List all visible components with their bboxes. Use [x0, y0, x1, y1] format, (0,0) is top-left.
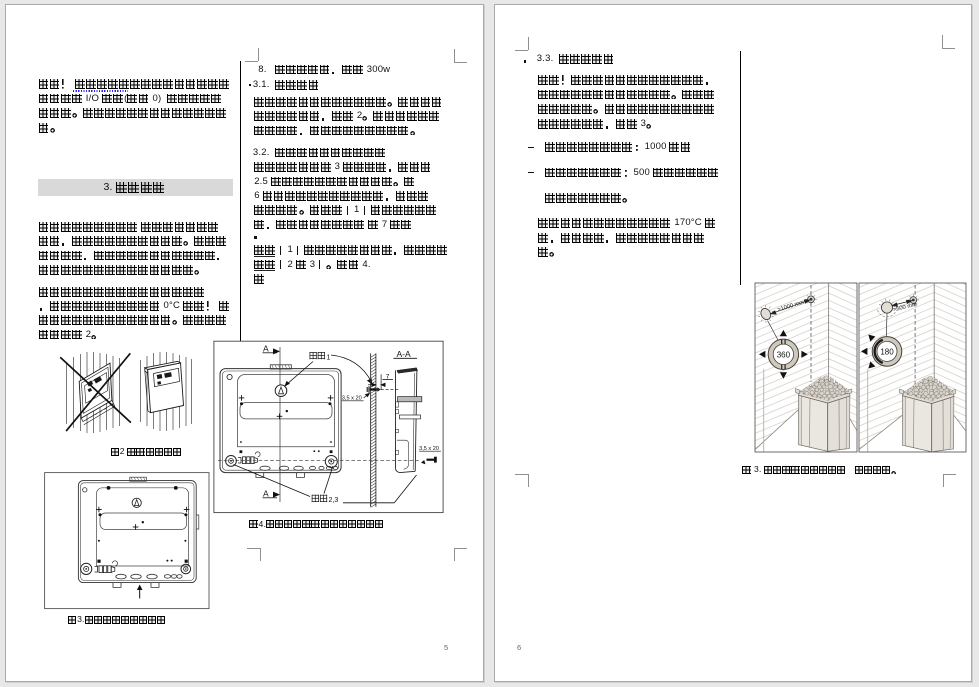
svg-text:180: 180 — [880, 347, 894, 356]
svg-text:2,3: 2,3 — [329, 497, 339, 504]
svg-text:1: 1 — [327, 354, 331, 361]
svg-text:A-A: A-A — [397, 349, 412, 359]
svg-text:A: A — [263, 344, 269, 354]
svg-text:360: 360 — [777, 350, 791, 359]
svg-text:A: A — [263, 489, 269, 499]
